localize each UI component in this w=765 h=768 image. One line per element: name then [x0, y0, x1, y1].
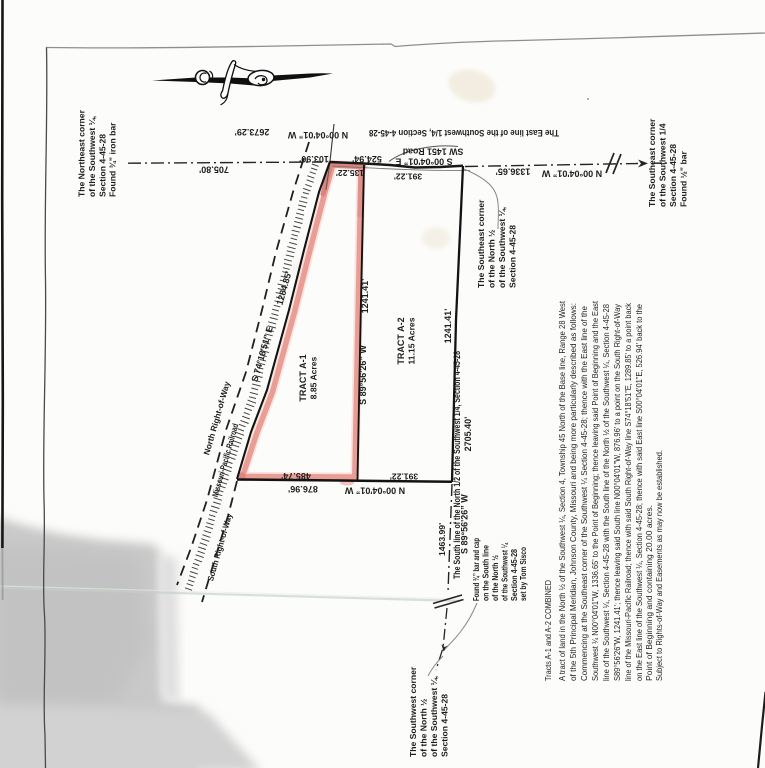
svg-text:2705.40': 2705.40' [463, 417, 473, 452]
svg-text:524.94': 524.94' [352, 154, 382, 164]
svg-text:of the Southwest 1/4: of the Southwest 1/4 [658, 123, 668, 207]
svg-text:of the North ½: of the North ½ [491, 555, 500, 601]
svg-text:N 00°04'01” W: N 00°04'01” W [287, 130, 348, 140]
svg-text:8.85 Acres: 8.85 Acres [309, 356, 319, 399]
svg-text:391.22': 391.22' [390, 472, 418, 482]
svg-text:135.22': 135.22' [336, 168, 364, 178]
svg-text:of the Southwest ¼: of the Southwest ¼ [501, 542, 510, 601]
svg-text:TRACT A-2: TRACT A-2 [396, 317, 406, 364]
svg-text:The Northeast corner: The Northeast corner [77, 109, 87, 197]
svg-text:Point of Beginning and contain: Point of Beginning and containing 20.00 … [644, 505, 654, 681]
svg-text:N 00°04'01” W: N 00°04'01” W [344, 486, 405, 496]
svg-text:Section 4-45-28: Section 4-45-28 [440, 694, 450, 757]
svg-text:of the Southwest ¼,: of the Southwest ¼, [429, 676, 439, 757]
svg-text:S 89°56'26” W: S 89°56'26” W [358, 345, 368, 405]
svg-text:876.96': 876.96' [288, 484, 318, 494]
svg-text:of the 5th Principal Meridian,: of the 5th Principal Meridian, Johnson C… [568, 303, 578, 681]
svg-text:of the North ½: of the North ½ [419, 699, 429, 757]
svg-text:Subject to Rights-of-Way and E: Subject to Rights-of-Way and Easements a… [654, 450, 664, 681]
svg-text:103.90': 103.90' [299, 154, 329, 164]
svg-text:N 00°04'01” W: N 00°04'01” W [541, 169, 602, 179]
svg-text:of the Southwest ¼,: of the Southwest ¼, [87, 116, 97, 197]
svg-text:Commencing at the Southeast co: Commencing at the Southeast corner of th… [579, 306, 589, 681]
svg-text:S 89°56'26” W: S 89°56'26” W [460, 494, 470, 554]
svg-text:on the South line: on the South line [482, 545, 491, 601]
svg-text:on the East line of the Southw: on the East line of the Southwest ¼, Sec… [634, 304, 644, 681]
svg-text:Found ½” bar: Found ½” bar [679, 150, 689, 207]
svg-text:11.15 Acres: 11.15 Acres [407, 317, 417, 364]
svg-text:485.74': 485.74' [281, 471, 311, 481]
svg-text:Section 4-45-28: Section 4-45-28 [668, 144, 678, 207]
svg-text:2673.29': 2673.29' [235, 127, 270, 137]
svg-text:line of the Southwest ¼, Secti: line of the Southwest ¼, Section 4-45-28… [601, 304, 611, 681]
svg-text:Section 4-45-28: Section 4-45-28 [98, 134, 108, 197]
svg-text:line of the Missouri-Pacific R: line of the Missouri-Pacific Railroad; t… [623, 302, 633, 681]
svg-text:of the Southwest ¼,: of the Southwest ¼, [497, 207, 507, 288]
svg-text:The East line of the Southwest: The East line of the Southwest 1/4, Sect… [369, 128, 559, 138]
svg-text:Section 4-45-28: Section 4-45-28 [508, 225, 518, 288]
svg-text:The Southeast corner: The Southeast corner [647, 118, 657, 207]
svg-text:Section 4-45-28: Section 4-45-28 [510, 549, 519, 601]
svg-text:set by Tom Sisco: set by Tom Sisco [519, 547, 528, 601]
svg-text:Tracts A-1 and A-2 COMBINED: Tracts A-1 and A-2 COMBINED [543, 580, 553, 681]
svg-text:S89°56'26”W, 1241.41'; thence: S89°56'26”W, 1241.41'; thence leaving sa… [612, 303, 622, 681]
svg-text:391.22': 391.22' [394, 172, 422, 182]
svg-text:Found ¾” iron bar: Found ¾” iron bar [108, 122, 118, 197]
svg-text:705.80': 705.80' [199, 165, 229, 175]
svg-text:1241.41': 1241.41' [443, 309, 453, 344]
svg-text:Southwest ¼ N00°04'01”W, 1336.: Southwest ¼ N00°04'01”W, 1336.65' to the… [590, 300, 600, 681]
svg-text:Found ¾” bar and cap: Found ¾” bar and cap [472, 538, 481, 601]
svg-text:A tract of land in the North ½: A tract of land in the North ½ of the So… [557, 300, 567, 681]
svg-text:The Southwest corner: The Southwest corner [408, 666, 418, 757]
svg-text:TRACT A-1: TRACT A-1 [298, 354, 308, 401]
svg-text:of the North ½: of the North ½ [487, 230, 497, 288]
svg-text:1463.99': 1463.99' [437, 523, 447, 556]
svg-text:SW 1451 Road: SW 1451 Road [403, 147, 464, 157]
svg-text:The Southeast corner: The Southeast corner [476, 199, 486, 288]
svg-text:1241.41': 1241.41' [360, 279, 370, 314]
svg-text:S 00°04'01” E: S 00°04'01” E [395, 157, 452, 167]
svg-text:1336.65': 1336.65' [496, 167, 531, 177]
